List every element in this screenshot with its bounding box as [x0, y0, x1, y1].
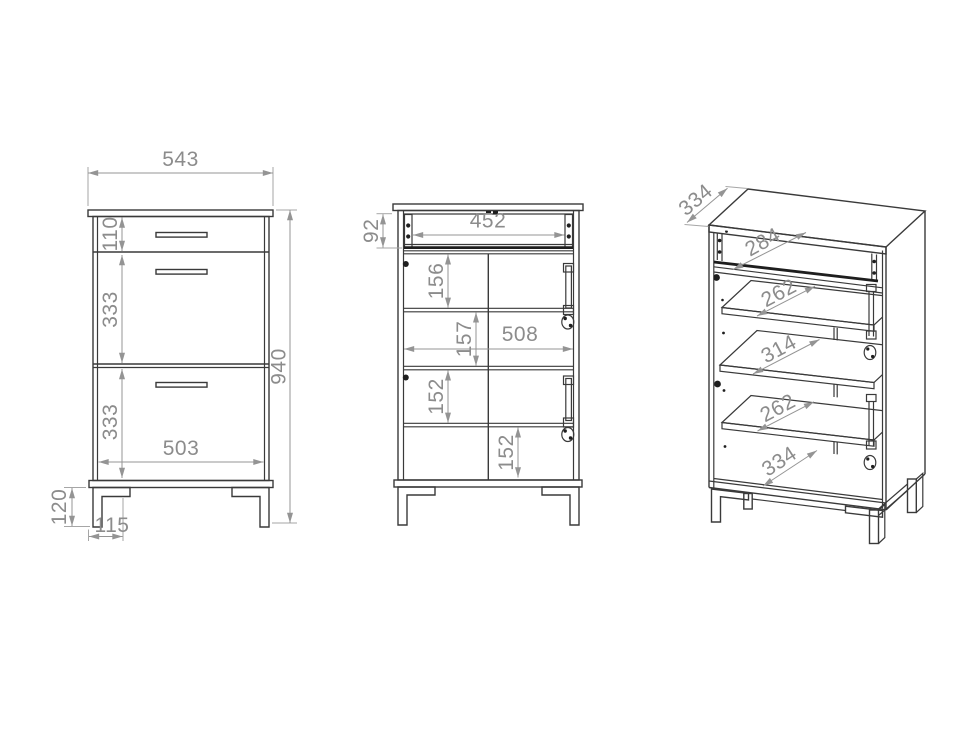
dim-compartment-3-height: 152: [425, 378, 448, 415]
dim-compartment-4-height: 152: [495, 434, 518, 471]
dim-top-drawer-height: 110: [99, 217, 122, 252]
drawer-screw-icon: [406, 223, 410, 227]
cabinet-drawing: 543 940 110 333 333 503 120 115: [0, 0, 978, 733]
front-view: 543 940 110 333 333 503 120 115: [48, 148, 297, 541]
perspective-interior: [713, 230, 911, 499]
hinge-cup-icon: [562, 315, 574, 329]
perspective-front-left-leg: [712, 489, 749, 522]
dim-compartment-2-height: 157: [453, 321, 476, 358]
dim-middle-section-height: 333: [99, 291, 122, 328]
front-right-leg: [232, 488, 269, 528]
front-dimensions: 543 940 110 333 333 503 120 115: [48, 148, 297, 541]
drawer-screw-icon: [406, 234, 410, 238]
perspective-shelves: [714, 281, 911, 500]
hinge-cup-icon: [864, 456, 876, 470]
perspective-legs: [712, 473, 923, 543]
drawer-rail: [714, 262, 878, 281]
door-pin-icon: [403, 261, 409, 267]
dim-bottom-section-height: 333: [99, 404, 122, 441]
handle-middle-drawer: [156, 270, 207, 275]
door-pin-icon: [403, 375, 409, 381]
technical-drawing-canvas: 543 940 110 333 333 503 120 115: [0, 0, 978, 733]
perspective-outer-frame: [709, 189, 925, 510]
dim-compartment-1-height: 156: [425, 263, 448, 300]
open-legs: [398, 487, 579, 525]
dim-interior-width: 503: [163, 437, 200, 460]
perspective-hinge-lower: [864, 395, 876, 470]
dim-overall-height: 940: [268, 348, 291, 385]
open-right-leg: [542, 487, 579, 525]
perspective-hinge-upper: [864, 285, 876, 360]
dim-middle-shelf-depth: 314: [757, 331, 800, 368]
dim-leg-height: 120: [48, 489, 71, 526]
perspective-front-right-leg: [870, 510, 879, 544]
dim-leg-width: 115: [95, 514, 130, 537]
door-pin-icon: [714, 381, 721, 388]
drawer-screw-icon: [567, 223, 571, 227]
dim-open-interior-width: 508: [502, 323, 539, 346]
dim-upper-shelf-depth: 262: [757, 275, 800, 312]
hinge-cup-icon: [864, 346, 876, 360]
door-pin-icon: [713, 274, 720, 281]
open-view: 92 452 156 157 508 152 152: [360, 204, 583, 525]
dim-drawer-box-height: 92: [360, 219, 383, 243]
perspective-dimensions: 334 284 262 314 262 334: [674, 179, 819, 486]
handle-top-drawer: [156, 233, 207, 238]
dim-lower-shelf-depth: 262: [756, 390, 799, 427]
hinge-cup-icon: [562, 428, 574, 442]
top-panel-edge: [709, 225, 886, 254]
open-hinge-upper: [562, 264, 574, 330]
dim-overall-width: 543: [162, 148, 199, 171]
drawer-screw-icon: [567, 234, 571, 238]
dim-overall-depth: 334: [674, 179, 717, 220]
open-left-leg: [398, 487, 435, 525]
handle-bottom-drawer: [156, 383, 207, 388]
drawer-slide-brackets: [717, 230, 876, 281]
dim-drawer-interior-width: 452: [470, 210, 507, 233]
dim-drawer-shelf-depth: 284: [741, 223, 784, 261]
open-hinge-lower: [562, 376, 574, 442]
open-dimensions: 92 452 156 157 508 152 152: [360, 210, 573, 478]
perspective-view: 334 284 262 314 262 334: [674, 179, 925, 543]
